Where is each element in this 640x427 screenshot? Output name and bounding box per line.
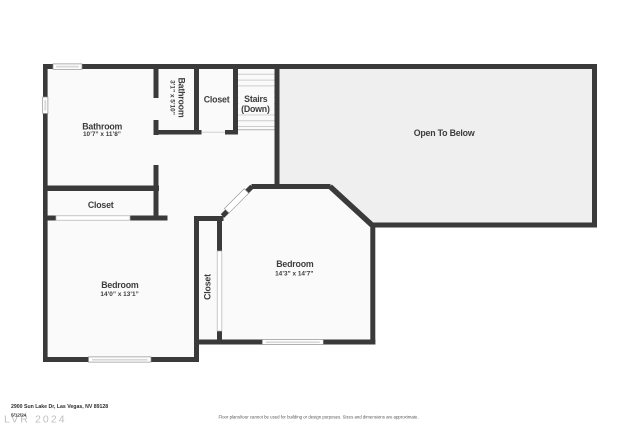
svg-text:Bedroom: Bedroom (276, 259, 314, 269)
svg-text:Bathroom: Bathroom (82, 122, 122, 132)
svg-text:Closet: Closet (204, 95, 230, 105)
svg-text:14’0” x 13’1”: 14’0” x 13’1” (100, 291, 138, 298)
svg-text:(Down): (Down) (241, 104, 270, 114)
svg-text:Closet: Closet (202, 274, 212, 300)
svg-text:Closet: Closet (88, 200, 114, 210)
svg-text:3’1” x 5’10”: 3’1” x 5’10” (169, 80, 176, 115)
svg-text:Floor plans/tour cannot be use: Floor plans/tour cannot be used for buil… (219, 415, 419, 420)
svg-text:Stairs: Stairs (244, 94, 268, 104)
svg-text:2900 Sun Lake Dr, Las Vegas, N: 2900 Sun Lake Dr, Las Vegas, NV 89128 (11, 404, 108, 410)
svg-text:10’7” x 11’8”: 10’7” x 11’8” (83, 131, 121, 138)
svg-text:14’3” x 14’7”: 14’3” x 14’7” (275, 270, 313, 277)
svg-text:Open To Below: Open To Below (414, 128, 475, 138)
svg-text:Bedroom: Bedroom (101, 280, 139, 290)
svg-text:Bathroom: Bathroom (177, 78, 187, 118)
svg-text:5/12/24: 5/12/24 (11, 413, 27, 418)
